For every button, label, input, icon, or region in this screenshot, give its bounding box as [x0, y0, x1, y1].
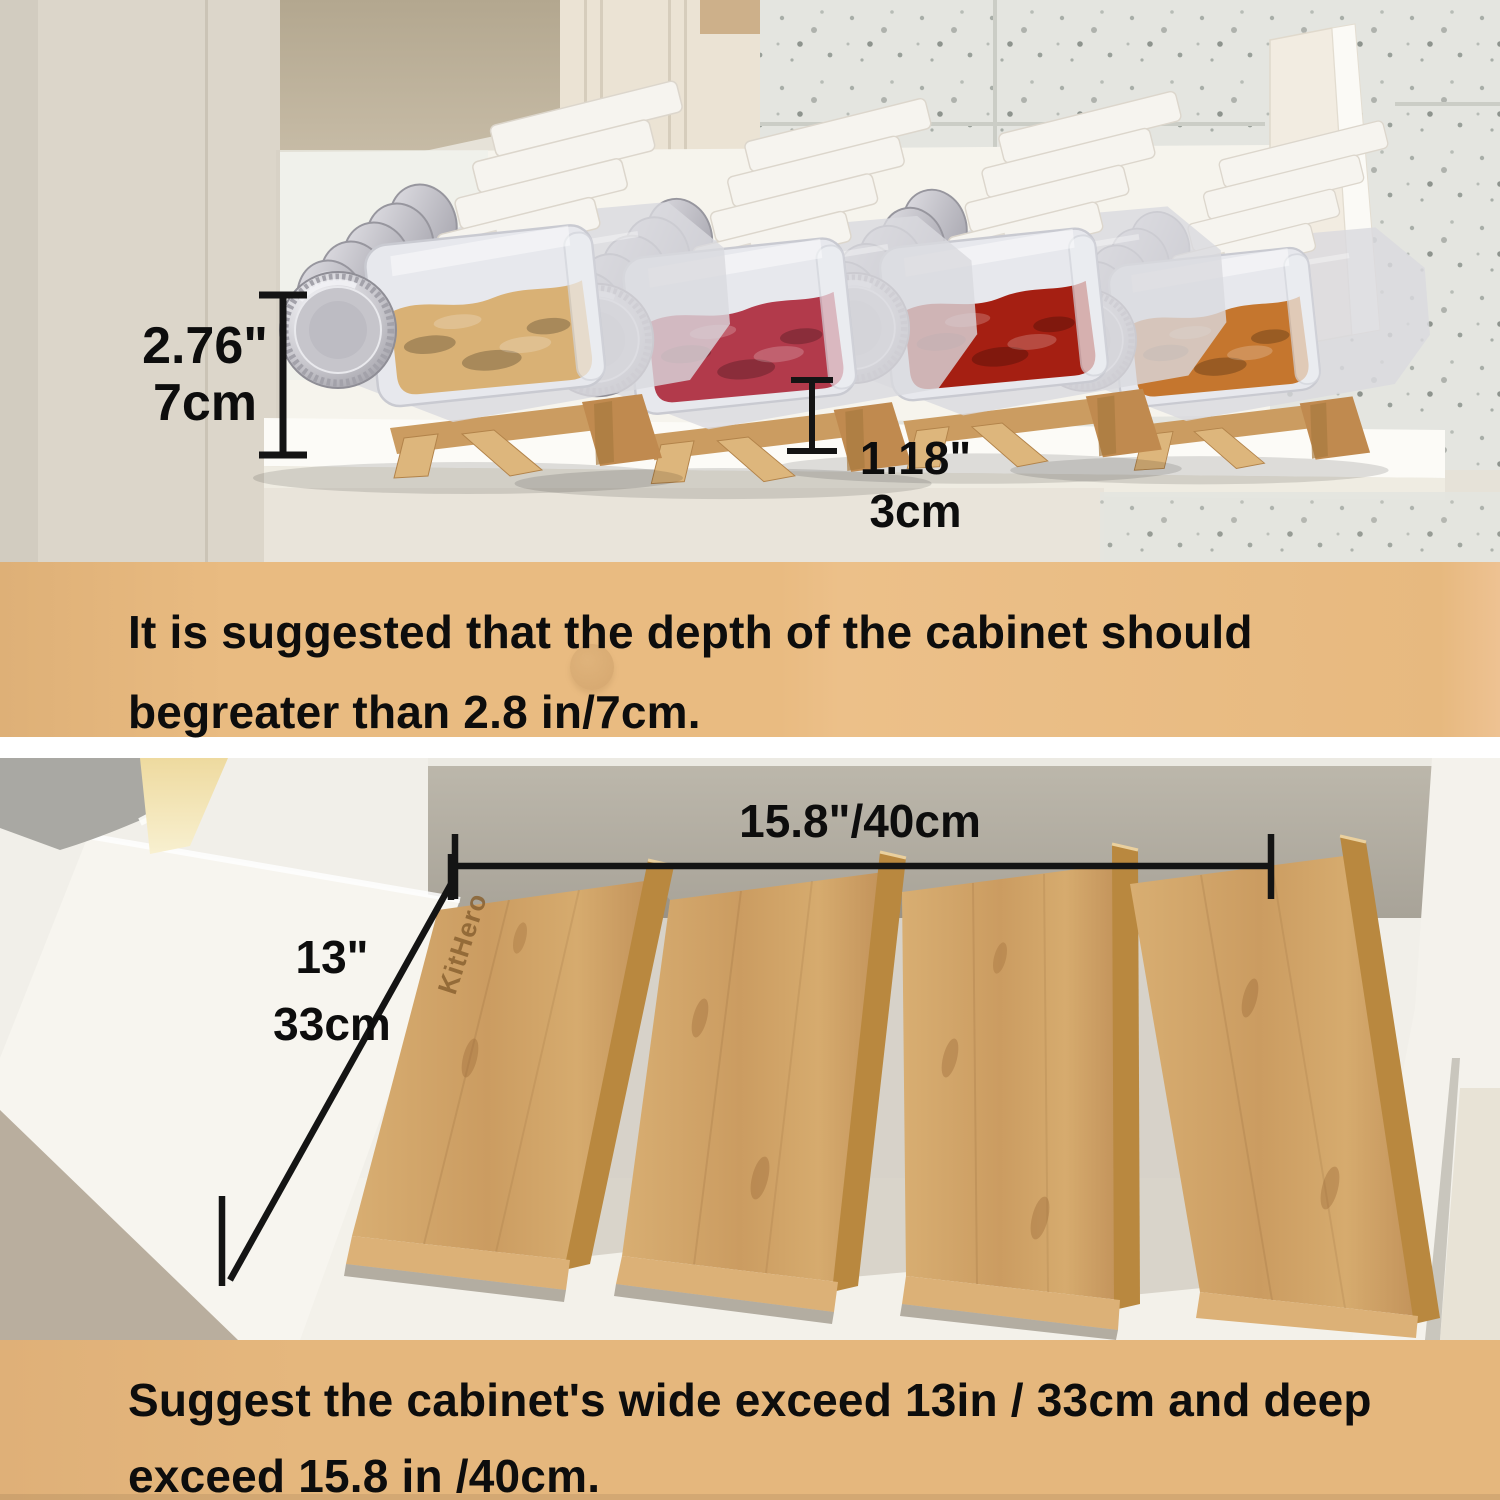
dim-width-inches: 13"	[222, 924, 442, 991]
photo-bamboo-organizer: KitHero 15.8"/40cm 13" 33cm	[0, 758, 1500, 1340]
depth-suggestion-text: It is suggested that the depth of the ca…	[128, 592, 1440, 752]
depth-suggestion-line2: begreater than 2.8 in/7cm.	[128, 672, 1440, 752]
dim-label-depth: 15.8"/40cm	[640, 796, 1080, 846]
dim-height-inches: 2.76"	[110, 318, 300, 375]
dim-base-inches: 1.18"	[828, 432, 1003, 485]
size-suggestion-line2: exceed 15.8 in /40cm.	[128, 1438, 1440, 1500]
dim-label-width: 13" 33cm	[222, 924, 442, 1058]
photo-drawer-with-jars: 2.76" 7cm 1.18" 3cm	[0, 0, 1500, 565]
dim-base-cm: 3cm	[828, 485, 1003, 538]
photo-top-svg	[0, 0, 1500, 565]
depth-suggestion-line1: It is suggested that the depth of the ca…	[128, 592, 1440, 672]
dim-label-stand-height: 1.18" 3cm	[828, 432, 1003, 538]
product-infographic: 2.76" 7cm 1.18" 3cm It is suggested that…	[0, 0, 1500, 1500]
dim-height-cm: 7cm	[110, 375, 300, 432]
bamboo-tier-3	[900, 844, 1140, 1340]
dim-label-jar-height: 2.76" 7cm	[110, 318, 300, 432]
suggestion-band-size: Suggest the cabinet's wide exceed 13in /…	[0, 1340, 1500, 1500]
dim-width-cm: 33cm	[222, 991, 442, 1058]
left-cabinet-column	[0, 0, 280, 565]
size-suggestion-text: Suggest the cabinet's wide exceed 13in /…	[128, 1362, 1440, 1500]
suggestion-band-depth: It is suggested that the depth of the ca…	[0, 562, 1500, 737]
size-suggestion-line1: Suggest the cabinet's wide exceed 13in /…	[128, 1362, 1440, 1438]
dim-depth-value: 15.8"/40cm	[640, 796, 1080, 846]
